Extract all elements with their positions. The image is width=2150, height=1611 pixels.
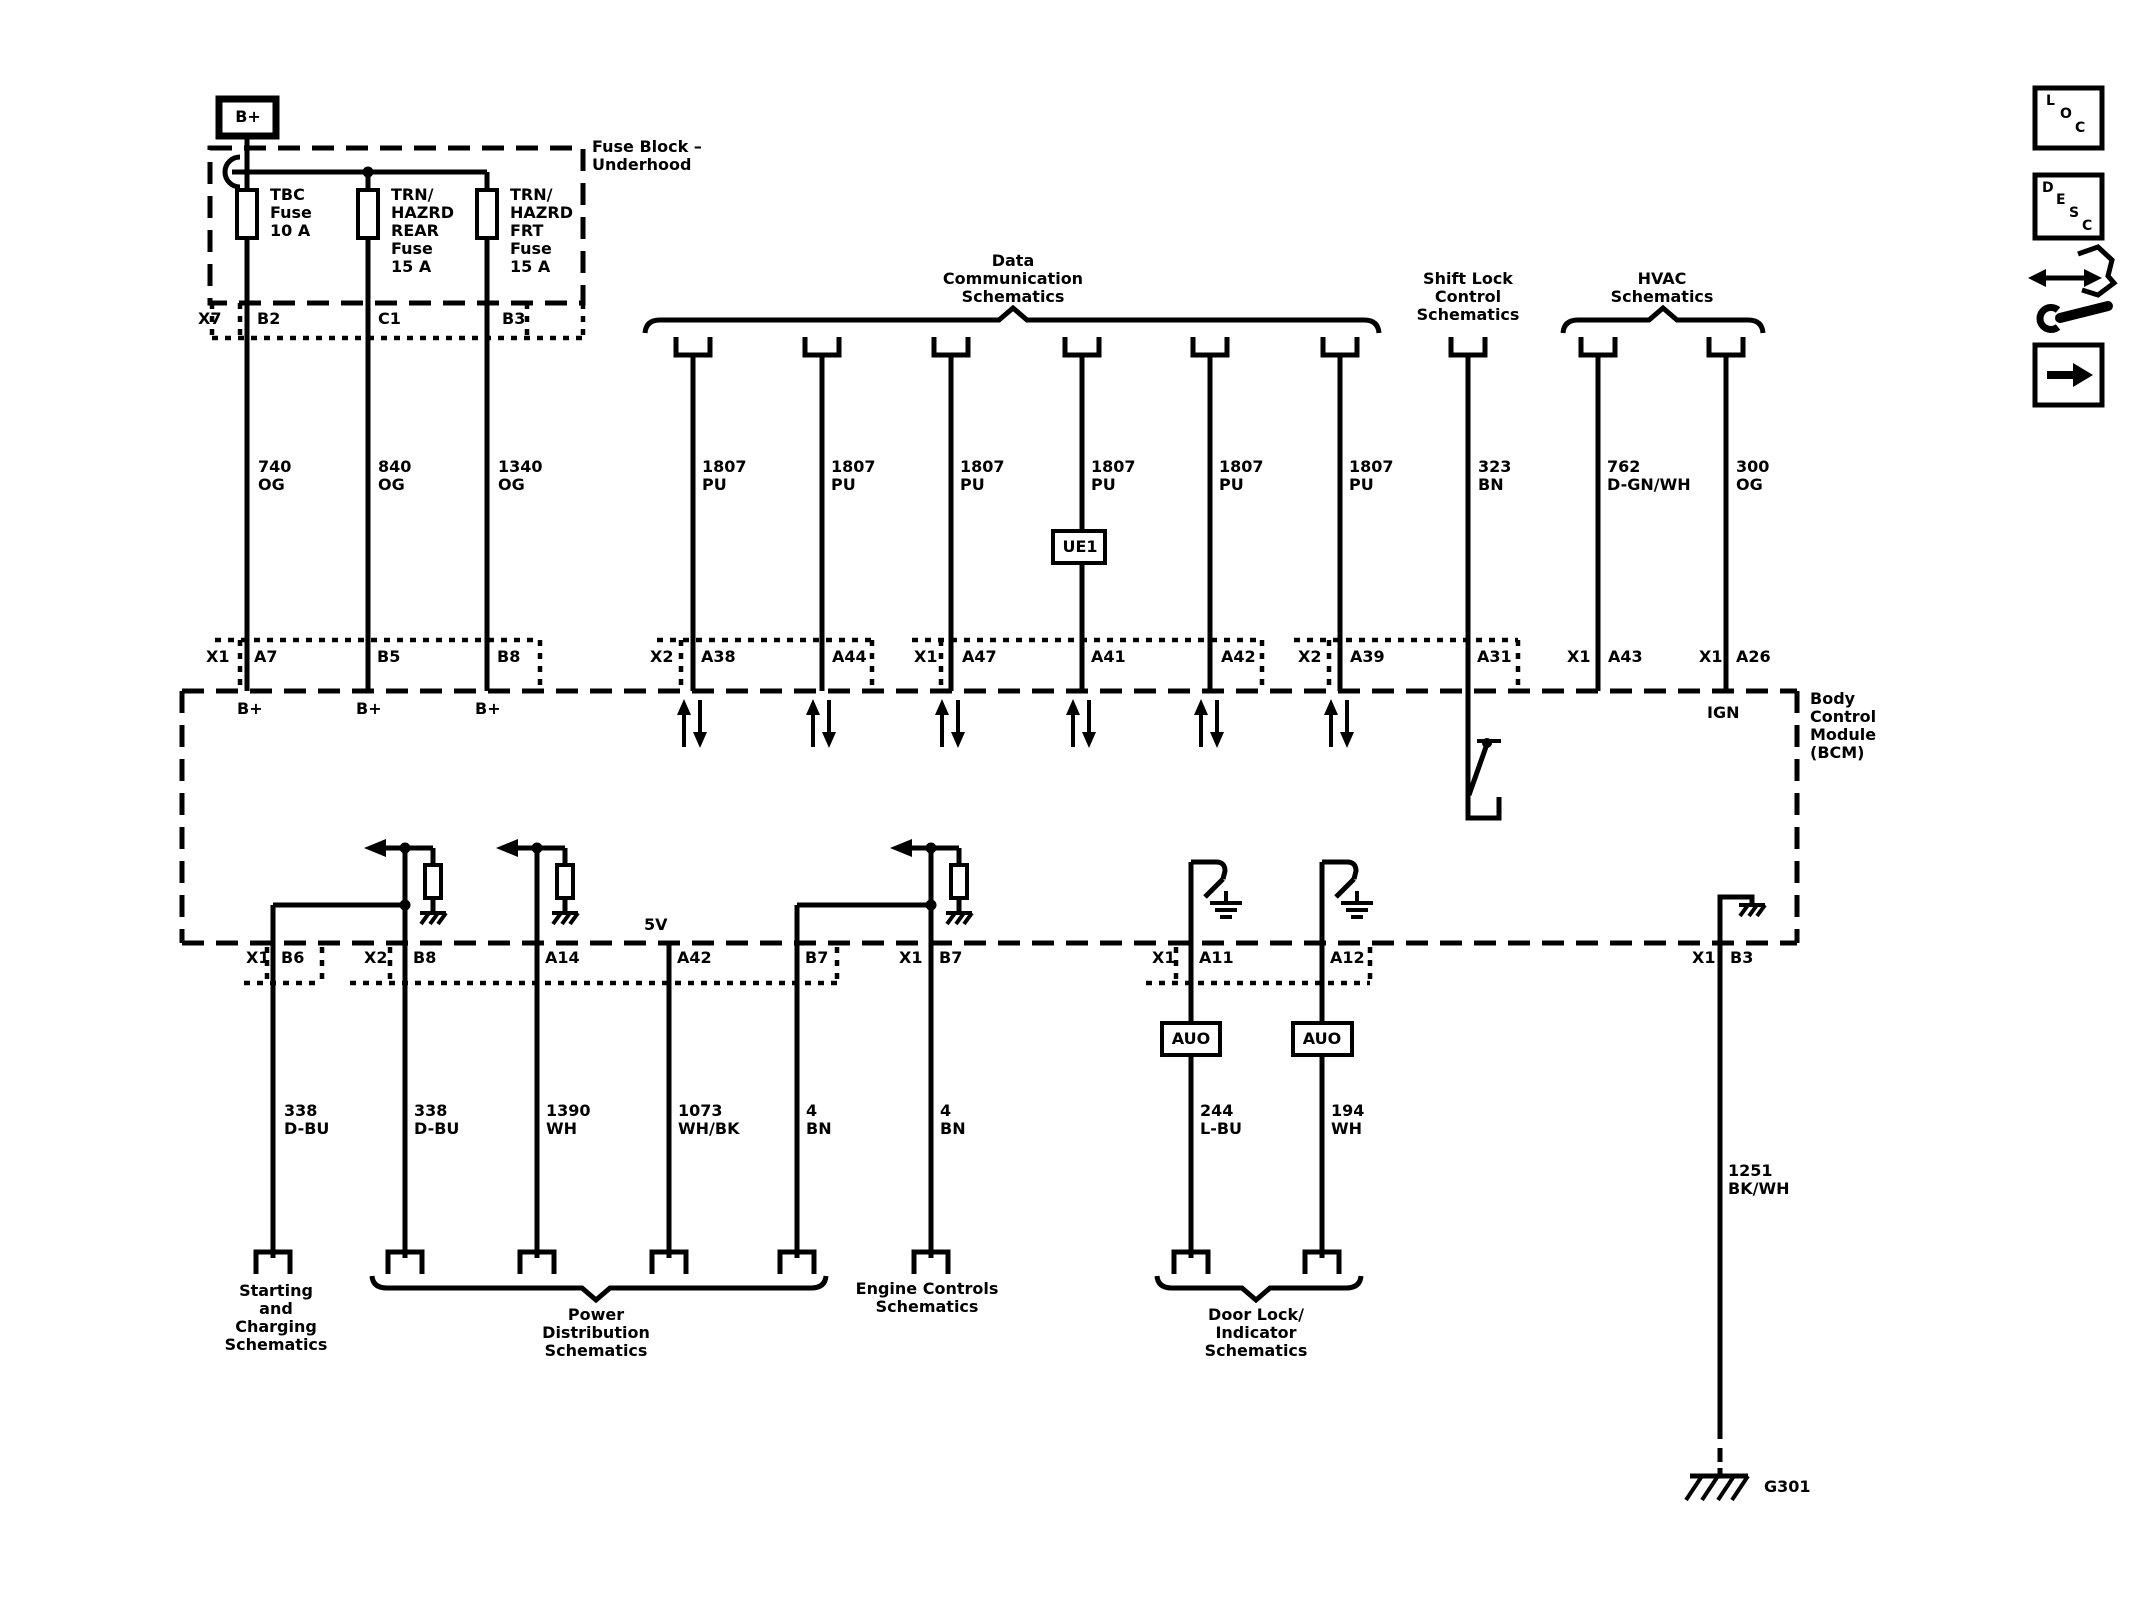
pin-label-b5: B5 xyxy=(377,648,400,666)
splice-label-ue1: UE1 xyxy=(1062,538,1097,556)
desc-button-letter[interactable]: E xyxy=(2056,193,2066,207)
next-arrow-button[interactable] xyxy=(2035,345,2102,405)
wire-label-4-bn: 4BN xyxy=(940,1102,966,1138)
wire-label-338-dbu: 338D-BU xyxy=(414,1102,459,1138)
connector-label-x2: X2 xyxy=(1298,648,1321,666)
wire-label-1807-pu: 1807PU xyxy=(702,458,747,494)
pin-label-a41: A41 xyxy=(1091,648,1126,666)
net-label-ign: IGN xyxy=(1707,704,1739,722)
chassis-ground-icon xyxy=(946,913,972,924)
pin-label-a39: A39 xyxy=(1350,648,1385,666)
chassis-ground-icon xyxy=(420,913,446,924)
resistor-icon xyxy=(425,865,441,898)
net-label-bplus: B+ xyxy=(475,700,501,718)
wire-label-1340-og: 1340OG xyxy=(498,458,543,494)
data-comm-brace xyxy=(645,308,1379,333)
pin-label-a44: A44 xyxy=(832,648,867,666)
section-title-door-lock-indicator: Door Lock/IndicatorSchematics xyxy=(1205,1306,1308,1360)
bcm-interior-circuits xyxy=(273,839,1765,1258)
fuse-label-trn-hazrd-rear: TRN/HAZRDREARFuse15 A xyxy=(391,186,454,276)
wire-label-323-bn: 323BN xyxy=(1478,458,1511,494)
pin-label-a12: A12 xyxy=(1330,949,1365,967)
connector-label-x1: X1 xyxy=(246,949,269,967)
g301-ground xyxy=(1686,943,1748,1500)
toolbar-icons xyxy=(2028,88,2114,405)
fuse-label-trn-hazrd-frt: TRN/HAZRDFRTFuse15 A xyxy=(510,186,573,276)
bcm-outline xyxy=(182,691,1797,943)
wire-label-840-og: 840OG xyxy=(378,458,411,494)
adjust-tool-icon[interactable] xyxy=(2028,247,2114,330)
connector-label-x1: X1 xyxy=(914,648,937,666)
pin-label-b3: B3 xyxy=(1730,949,1753,967)
wire-label-1251-bkwh: 1251BK/WH xyxy=(1728,1162,1789,1198)
section-title-shift-lock: Shift LockControlSchematics xyxy=(1417,270,1520,324)
fuse-label-tbc: TBCFuse10 A xyxy=(270,186,312,240)
pin-label-b3: B3 xyxy=(502,310,525,328)
schematic-linework xyxy=(0,0,2150,1611)
pin-label-a7: A7 xyxy=(254,648,278,666)
power-feed-label: B+ xyxy=(235,108,261,126)
section-title-engine-controls: Engine ControlsSchematics xyxy=(856,1280,999,1316)
wire-label-1807-pu: 1807PU xyxy=(960,458,1005,494)
connector-label-x7: X7 xyxy=(198,310,221,328)
connector-label-x1: X1 xyxy=(1699,648,1722,666)
pin-label-a42: A42 xyxy=(677,949,712,967)
ground-label-g301: G301 xyxy=(1764,1478,1811,1496)
pin-label-a26: A26 xyxy=(1736,648,1771,666)
connector-label-x1: X1 xyxy=(1692,949,1715,967)
resistor-icon xyxy=(951,865,967,898)
desc-button-letter[interactable]: D xyxy=(2042,181,2054,195)
device-label-auo: AUO xyxy=(1172,1030,1210,1048)
connector-label-x1: X1 xyxy=(1567,648,1590,666)
loc-button-letter[interactable]: C xyxy=(2075,121,2085,135)
wire-label-338-dbu: 338D-BU xyxy=(284,1102,329,1138)
chassis-ground-icon xyxy=(1686,1476,1748,1500)
arrow-pair-icon xyxy=(1066,699,1096,748)
pin-label-a11: A11 xyxy=(1199,949,1234,967)
connector-label-x1: X1 xyxy=(206,648,229,666)
connector-label-x2: X2 xyxy=(650,648,673,666)
wire-label-762-dgnwh: 762D-GN/WH xyxy=(1607,458,1691,494)
pin-label-a38: A38 xyxy=(701,648,736,666)
pin-label-a14: A14 xyxy=(545,949,580,967)
fuse-trn-hazrd-rear-icon xyxy=(358,190,378,238)
connector-label-x1: X1 xyxy=(899,949,922,967)
desc-button-letter[interactable]: C xyxy=(2082,219,2092,233)
net-label-bplus: B+ xyxy=(237,700,263,718)
pin-label-b8: B8 xyxy=(413,949,436,967)
switch-to-ground-icon xyxy=(1322,862,1373,1258)
data-direction-arrows xyxy=(677,699,1354,748)
loc-button-letter[interactable]: L xyxy=(2046,94,2055,108)
fuse-block-title: Fuse Block – Underhood xyxy=(592,138,702,174)
wire-label-4-bn: 4BN xyxy=(806,1102,832,1138)
pin-label-b2: B2 xyxy=(257,310,280,328)
wire-label-1390-wh: 1390WH xyxy=(546,1102,591,1138)
section-title-power-distribution: PowerDistributionSchematics xyxy=(542,1306,650,1360)
connector-label-x1: X1 xyxy=(1152,949,1175,967)
section-title-starting-charging: StartingandChargingSchematics xyxy=(225,1282,328,1354)
module-name-bcm: BodyControlModule(BCM) xyxy=(1810,690,1876,762)
wire-label-1807-pu: 1807PU xyxy=(1091,458,1136,494)
wire-label-1807-pu: 1807PU xyxy=(1349,458,1394,494)
net-label-bplus: B+ xyxy=(356,700,382,718)
internal-ground-icon xyxy=(1720,897,1765,943)
pin-label-b8: B8 xyxy=(497,648,520,666)
hvac-brace xyxy=(1563,308,1763,333)
chassis-ground-icon xyxy=(552,913,578,924)
wire-label-194-wh: 194WH xyxy=(1331,1102,1364,1138)
pin-label-c1: C1 xyxy=(378,310,401,328)
pin-label-b7: B7 xyxy=(939,949,962,967)
pin-label-b7: B7 xyxy=(805,949,828,967)
arrow-pair-icon xyxy=(1194,699,1224,748)
wire-label-740-og: 740OG xyxy=(258,458,291,494)
fuse-trn-hazrd-frt-icon xyxy=(477,190,497,238)
loc-button-letter[interactable]: O xyxy=(2060,107,2072,121)
pin-label-a47: A47 xyxy=(962,648,997,666)
wire-label-300-og: 300OG xyxy=(1736,458,1769,494)
hvac-wires xyxy=(1563,308,1763,691)
pin-label-a43: A43 xyxy=(1608,648,1643,666)
door-lock-brace xyxy=(1157,1276,1361,1300)
arrow-pair-icon xyxy=(677,699,707,748)
power-dist-brace xyxy=(372,1276,826,1300)
arrow-pair-icon xyxy=(1324,699,1354,748)
net-label-5v: 5V xyxy=(644,916,668,934)
arrow-pair-icon xyxy=(806,699,836,748)
wire-label-1073-whbk: 1073WH/BK xyxy=(678,1102,739,1138)
switch-to-ground-icon xyxy=(1191,862,1242,1258)
fuse-tbc-icon xyxy=(237,190,257,238)
pin-label-a31: A31 xyxy=(1477,648,1512,666)
pin-label-b6: B6 xyxy=(281,949,304,967)
desc-button-letter[interactable]: S xyxy=(2069,206,2079,220)
pin-label-a42: A42 xyxy=(1221,648,1256,666)
section-title-data-comm: DataCommunicationSchematics xyxy=(943,252,1083,306)
arrow-pair-icon xyxy=(935,699,965,748)
device-label-auo: AUO xyxy=(1303,1030,1341,1048)
resistor-icon xyxy=(557,865,573,898)
wiring-diagram-page: B+ Fuse Block – Underhood TBCFuse10 A TR… xyxy=(0,0,2150,1611)
wire-label-1807-pu: 1807PU xyxy=(831,458,876,494)
connector-label-x2: X2 xyxy=(364,949,387,967)
shift-lock-switch-icon xyxy=(1468,691,1501,818)
wire-label-244-lbu: 244L-BU xyxy=(1200,1102,1242,1138)
wire-label-1807-pu: 1807PU xyxy=(1219,458,1264,494)
section-title-hvac: HVACSchematics xyxy=(1611,270,1714,306)
